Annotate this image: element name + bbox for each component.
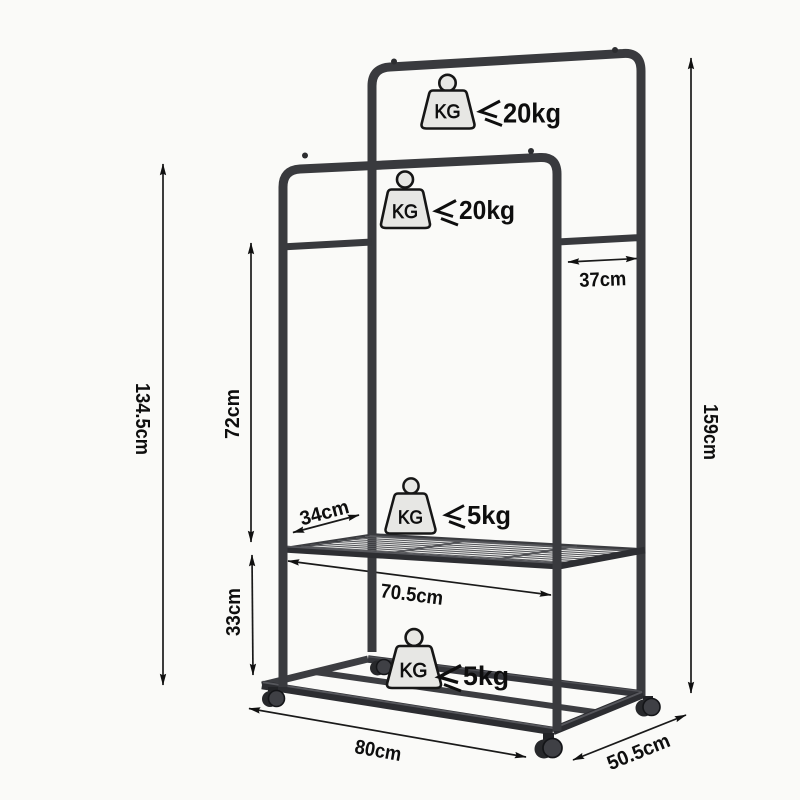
svg-text:KG: KG xyxy=(398,507,423,528)
svg-text:37cm: 37cm xyxy=(579,268,627,292)
svg-text:KG: KG xyxy=(392,201,418,223)
svg-text:20kg: 20kg xyxy=(459,195,515,225)
svg-text:KG: KG xyxy=(400,659,428,682)
svg-text:20kg: 20kg xyxy=(503,98,561,129)
svg-text:5kg: 5kg xyxy=(467,500,511,530)
svg-text:134.5cm: 134.5cm xyxy=(131,383,153,455)
svg-text:159cm: 159cm xyxy=(699,404,721,460)
svg-text:5kg: 5kg xyxy=(463,661,509,691)
svg-text:KG: KG xyxy=(435,101,461,123)
svg-text:72cm: 72cm xyxy=(222,389,244,439)
svg-text:33cm: 33cm xyxy=(223,588,245,636)
